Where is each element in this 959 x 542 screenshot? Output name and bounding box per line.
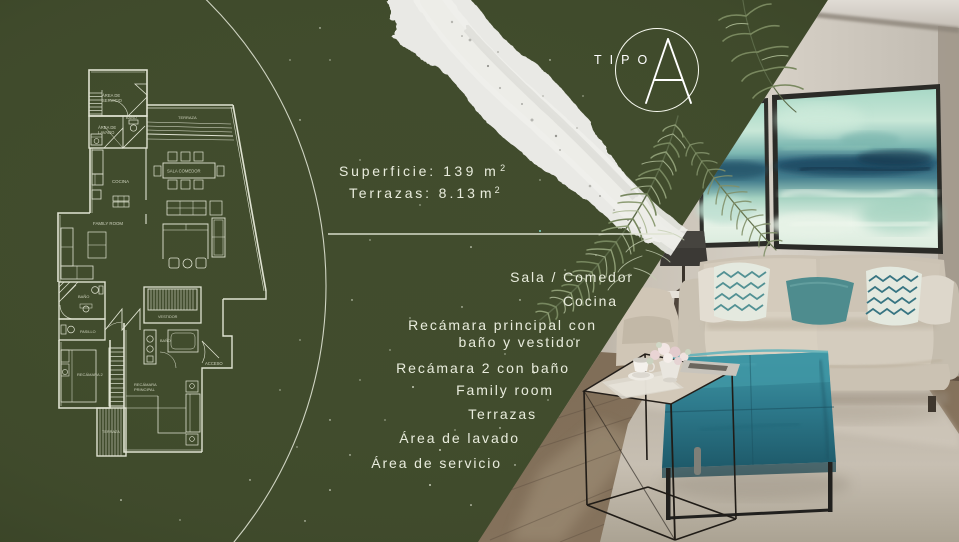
svg-text:Superficie: 139 m2: Superficie: 139 m2 bbox=[339, 163, 508, 179]
svg-text:RECÁMARA 2: RECÁMARA 2 bbox=[77, 372, 104, 377]
svg-text:Cocina: Cocina bbox=[563, 293, 618, 309]
svg-text:Área de servicio: Área de servicio bbox=[371, 455, 502, 471]
svg-text:Family room: Family room bbox=[456, 382, 554, 398]
svg-text:COCINA: COCINA bbox=[112, 179, 129, 184]
svg-text:baño y vestidor: baño y vestidor bbox=[459, 334, 582, 350]
svg-text:Recámara principal con: Recámara principal con bbox=[408, 317, 597, 333]
svg-text:TERRAZA: TERRAZA bbox=[178, 115, 197, 120]
svg-text:BAÑO: BAÑO bbox=[160, 338, 171, 343]
svg-text:ACCESO: ACCESO bbox=[205, 361, 223, 366]
svg-text:SALA COMEDOR: SALA COMEDOR bbox=[167, 169, 201, 174]
svg-text:BAÑO: BAÑO bbox=[126, 115, 137, 120]
svg-text:BAÑO: BAÑO bbox=[78, 294, 89, 299]
svg-text:VESTIDOR: VESTIDOR bbox=[158, 315, 178, 319]
svg-text:TIPO: TIPO bbox=[594, 53, 655, 67]
svg-text:PRINCIPAL: PRINCIPAL bbox=[134, 387, 156, 392]
svg-text:PASILLO: PASILLO bbox=[80, 330, 96, 334]
svg-text:Sala / Comedor: Sala / Comedor bbox=[510, 269, 634, 285]
svg-text:FAMILY ROOM: FAMILY ROOM bbox=[93, 221, 123, 226]
svg-text:Área de lavado: Área de lavado bbox=[399, 430, 520, 446]
svg-text:Terrazas: Terrazas bbox=[468, 406, 537, 422]
svg-text:Recámara 2 con baño: Recámara 2 con baño bbox=[396, 360, 570, 376]
svg-text:SERVICIO: SERVICIO bbox=[102, 98, 123, 103]
svg-text:Terrazas: 8.13m2: Terrazas: 8.13m2 bbox=[349, 185, 502, 201]
svg-text:TERRAZA: TERRAZA bbox=[102, 430, 120, 434]
